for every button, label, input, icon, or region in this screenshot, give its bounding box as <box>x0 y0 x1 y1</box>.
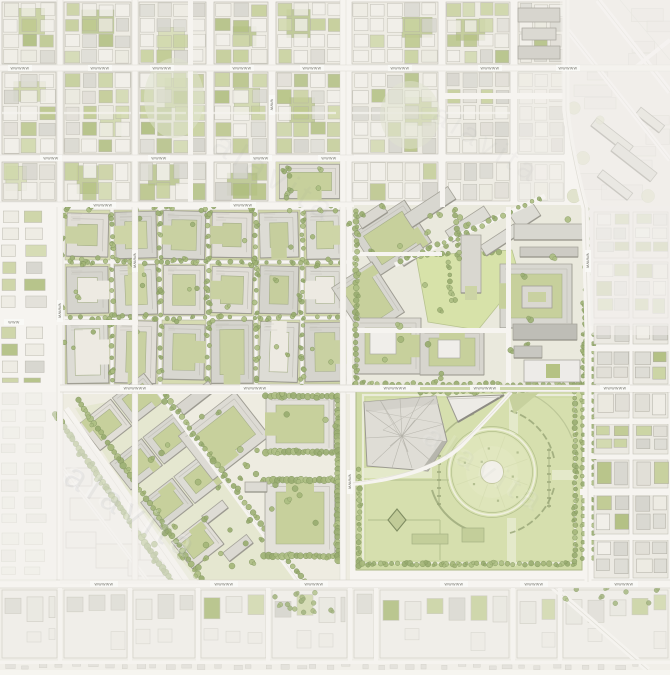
svg-text:WWWW: WWWW <box>132 253 136 268</box>
svg-text:WWWWW: WWWWW <box>153 67 172 71</box>
svg-text:WWWWW: WWWWW <box>391 67 410 71</box>
svg-text:WWWWWW: WWWWWW <box>384 387 407 391</box>
svg-text:WWWWW: WWWWW <box>525 583 544 587</box>
svg-text:WWWWWW: WWWWWW <box>604 387 627 391</box>
svg-text:WWWWW: WWWWW <box>234 204 253 208</box>
svg-text:WWW: WWW <box>8 321 20 325</box>
svg-text:WWWWW: WWWWW <box>303 67 322 71</box>
svg-text:WWWWW: WWWWW <box>559 67 578 71</box>
svg-text:WWWWW: WWWWW <box>91 67 110 71</box>
svg-text:WWW: WWW <box>269 99 273 111</box>
svg-text:WWWW: WWWW <box>585 253 589 268</box>
svg-text:WWWWWW: WWWWWW <box>244 387 267 391</box>
svg-text:WWWWWW: WWWWWW <box>124 387 147 391</box>
svg-text:WWWW: WWWW <box>57 303 61 318</box>
svg-text:WWWW: WWWW <box>347 474 351 489</box>
svg-text:WWWWW: WWWWW <box>305 583 324 587</box>
svg-text:WWWWW: WWWWW <box>615 583 634 587</box>
svg-text:WWWW: WWWW <box>43 157 58 161</box>
svg-text:WWWWW: WWWWW <box>445 583 464 587</box>
svg-text:WWWWW: WWWWW <box>94 204 113 208</box>
svg-text:WWWWW: WWWWW <box>95 583 114 587</box>
svg-text:WWWWW: WWWWW <box>233 67 252 71</box>
svg-text:WWWWW: WWWWW <box>11 67 30 71</box>
svg-text:WWWW: WWWW <box>151 157 166 161</box>
svg-text:WWWWW: WWWWW <box>481 67 500 71</box>
svg-text:WWWW: WWWW <box>321 157 336 161</box>
svg-text:WWWWWW: WWWWWW <box>474 387 497 391</box>
svg-text:WWWWW: WWWWW <box>215 583 234 587</box>
